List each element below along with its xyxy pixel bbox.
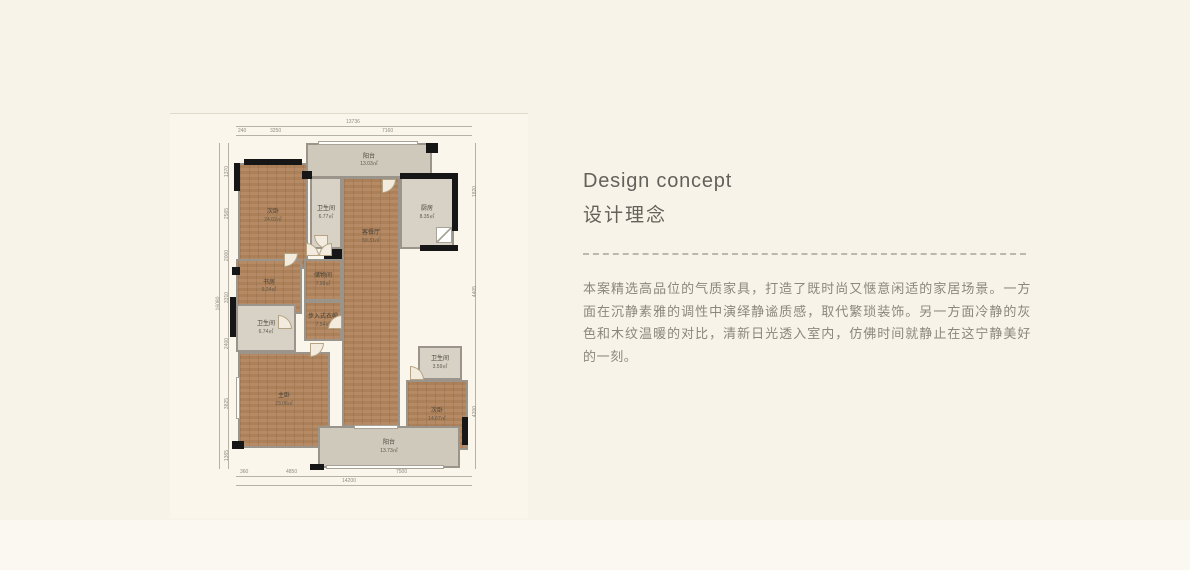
dimension-label: 13736 <box>346 120 360 125</box>
slide-page: 阳台13.03㎡ 次卧24.02㎡ 卫生间6.77㎡ 厨房8.35㎡ 客餐厅50… <box>0 0 1190 570</box>
wall-segment <box>452 179 458 231</box>
room-label: 阳台13.03㎡ <box>360 154 378 168</box>
room-label: 书房9.24㎡ <box>262 280 277 294</box>
room-label: 卫生间3.59㎡ <box>431 356 449 370</box>
wall-segment <box>462 417 468 445</box>
dimension-label: 4850 <box>286 470 297 475</box>
dimension-label: 2565 <box>225 208 230 219</box>
room-label: 客餐厅50.31㎡ <box>362 230 380 244</box>
room-label: 卫生间6.74㎡ <box>257 321 275 335</box>
dimension-label: 2000 <box>225 250 230 261</box>
dimension-label: 3250 <box>270 129 281 134</box>
dimension-line <box>228 143 229 469</box>
window-strip <box>236 377 240 419</box>
room-label: 卫生间6.77㎡ <box>317 206 335 220</box>
room-label: 阳台13.73㎡ <box>380 440 398 454</box>
dimension-label: 16080 <box>216 297 221 311</box>
dimension-label: 1370 <box>225 166 230 177</box>
section-title-en: Design concept <box>583 170 1031 193</box>
wall-segment <box>232 267 240 275</box>
dimension-line <box>236 485 472 486</box>
concept-paragraph: 本案精选高品位的气质家具，打造了既时尚又惬意闲适的家居场景。一方面在沉静素雅的调… <box>583 278 1031 368</box>
room-master-bedroom: 主卧23.06㎡ <box>238 352 330 448</box>
wall-segment <box>400 173 458 179</box>
room-label: 储物间7.99㎡ <box>314 273 332 287</box>
wall-segment <box>244 159 302 165</box>
window-strip <box>318 141 418 145</box>
dimension-label: 3310 <box>225 292 230 303</box>
dimension-label: 360 <box>240 470 248 475</box>
dimension-label: 4405 <box>473 286 478 297</box>
dimension-line <box>236 476 472 477</box>
dimension-label: 240 <box>238 129 246 134</box>
bottom-strip <box>0 520 1190 570</box>
dimension-label: 2400 <box>225 338 230 349</box>
room-label: 厨房8.35㎡ <box>420 206 435 220</box>
wall-segment <box>420 245 458 251</box>
dashed-divider <box>583 253 1026 255</box>
dimension-label: 3825 <box>225 398 230 409</box>
wall-segment <box>426 143 438 153</box>
floorplan-drawing: 阳台13.03㎡ 次卧24.02㎡ 卫生间6.77㎡ 厨房8.35㎡ 客餐厅50… <box>214 119 480 493</box>
wall-segment <box>234 163 240 191</box>
dimension-label: 1365 <box>225 450 230 461</box>
dimension-line <box>236 126 472 127</box>
concept-section: Design concept 设计理念 本案精选高品位的气质家具，打造了既时尚又… <box>583 170 1031 368</box>
room-label: 主卧23.06㎡ <box>275 393 293 407</box>
dimension-line <box>236 135 472 136</box>
room-label: 次卧24.02㎡ <box>264 209 282 223</box>
window-strip <box>326 465 444 469</box>
dimension-label: 7500 <box>396 470 407 475</box>
room-storage: 储物间7.99㎡ <box>304 259 342 301</box>
dimension-label: 4200 <box>473 406 478 417</box>
kitchen-fixture-icon <box>436 227 452 243</box>
dimension-label: 1820 <box>473 186 478 197</box>
wall-segment <box>302 171 312 179</box>
room-bath-right: 卫生间3.59㎡ <box>418 346 462 380</box>
room-label: 次卧14.67㎡ <box>428 408 446 422</box>
wall-segment <box>310 464 324 470</box>
dimension-label: 7160 <box>382 129 393 134</box>
window-strip <box>354 425 398 429</box>
room-balcony-bottom: 阳台13.73㎡ <box>318 426 460 468</box>
wall-segment <box>230 297 236 337</box>
wall-segment <box>232 441 244 449</box>
dimension-label: 14200 <box>342 479 356 484</box>
section-title-zh: 设计理念 <box>583 200 1031 227</box>
room-living-dining: 客餐厅50.31㎡ <box>342 177 400 427</box>
floorplan-image: 阳台13.03㎡ 次卧24.02㎡ 卫生间6.77㎡ 厨房8.35㎡ 客餐厅50… <box>170 113 528 518</box>
